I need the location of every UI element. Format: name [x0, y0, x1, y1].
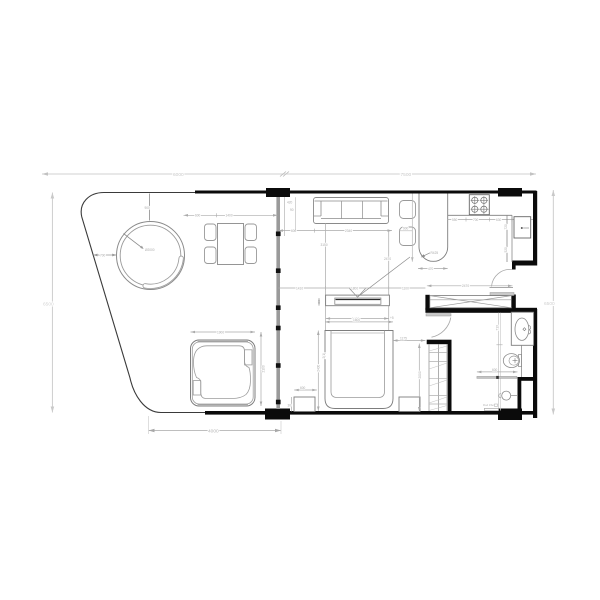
svg-text:Rod 15ø: Rod 15ø — [483, 403, 494, 407]
svg-text:1600: 1600 — [353, 318, 360, 322]
svg-text:900: 900 — [145, 206, 151, 210]
svg-text:2470: 2470 — [462, 284, 469, 288]
svg-text:6500: 6500 — [43, 301, 54, 307]
svg-text:470: 470 — [428, 267, 434, 271]
svg-text:6500: 6500 — [544, 301, 555, 307]
svg-text:1100: 1100 — [402, 286, 409, 290]
svg-text:+5: +5 — [390, 316, 394, 320]
svg-text:630: 630 — [496, 218, 502, 222]
svg-text:1400: 1400 — [226, 214, 233, 218]
svg-text:1900: 1900 — [217, 330, 224, 334]
svg-text:900: 900 — [403, 226, 409, 230]
svg-text:2470: 2470 — [384, 257, 391, 261]
svg-text:600: 600 — [300, 386, 306, 390]
svg-text:6000: 6000 — [173, 172, 184, 178]
svg-text:3150: 3150 — [321, 243, 328, 247]
svg-text:4000: 4000 — [208, 428, 219, 434]
svg-text:1410: 1410 — [296, 286, 303, 290]
svg-text:600: 600 — [195, 214, 201, 218]
svg-text:713: 713 — [496, 325, 500, 331]
svg-text:Ø2000: Ø2000 — [145, 248, 155, 252]
svg-text:700: 700 — [473, 218, 479, 222]
svg-text:7500: 7500 — [401, 172, 412, 178]
svg-text:520: 520 — [504, 247, 508, 253]
svg-text:2100: 2100 — [262, 365, 266, 372]
svg-text:720: 720 — [504, 224, 508, 230]
svg-text:2400: 2400 — [317, 364, 321, 371]
svg-text:2000: 2000 — [418, 371, 422, 378]
svg-text:90: 90 — [290, 208, 294, 212]
svg-text:550: 550 — [452, 218, 458, 222]
svg-text:600: 600 — [492, 368, 498, 372]
svg-text:2340: 2340 — [345, 229, 352, 233]
svg-text:700: 700 — [100, 253, 106, 257]
svg-text:R425: R425 — [431, 251, 439, 255]
svg-text:1175: 1175 — [400, 337, 407, 341]
svg-text:1800: 1800 — [351, 286, 358, 290]
svg-text:30: 30 — [288, 404, 292, 408]
svg-text:420: 420 — [287, 201, 293, 205]
svg-text:2(1): 2(1) — [322, 353, 326, 359]
